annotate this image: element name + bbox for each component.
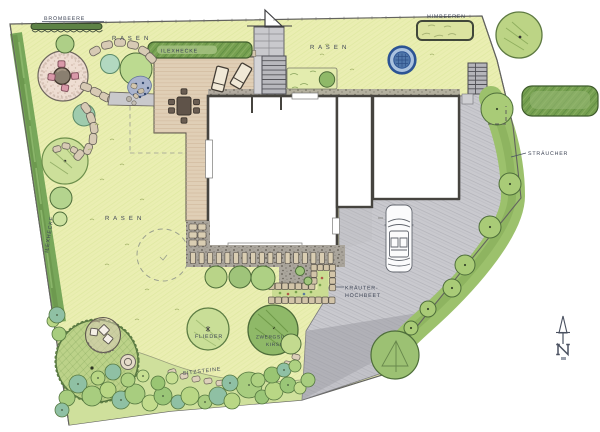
svg-text:STRÄUCHER: STRÄUCHER [528, 150, 568, 157]
svg-text:HIMBEEREN: HIMBEEREN [427, 14, 466, 20]
svg-text:FLIEDER: FLIEDER [195, 334, 223, 340]
svg-text:HOCHBEET: HOCHBEET [345, 293, 381, 299]
svg-text:KRÄUTER-: KRÄUTER- [345, 285, 378, 292]
svg-text:ILEXHECKE: ILEXHECKE [161, 49, 198, 55]
svg-text:R A S E N: R A S E N [310, 44, 347, 51]
svg-text:R A S E N: R A S E N [112, 35, 149, 42]
svg-text:R A S E N: R A S E N [105, 215, 142, 222]
svg-text:BROMBEERE: BROMBEERE [44, 16, 85, 22]
